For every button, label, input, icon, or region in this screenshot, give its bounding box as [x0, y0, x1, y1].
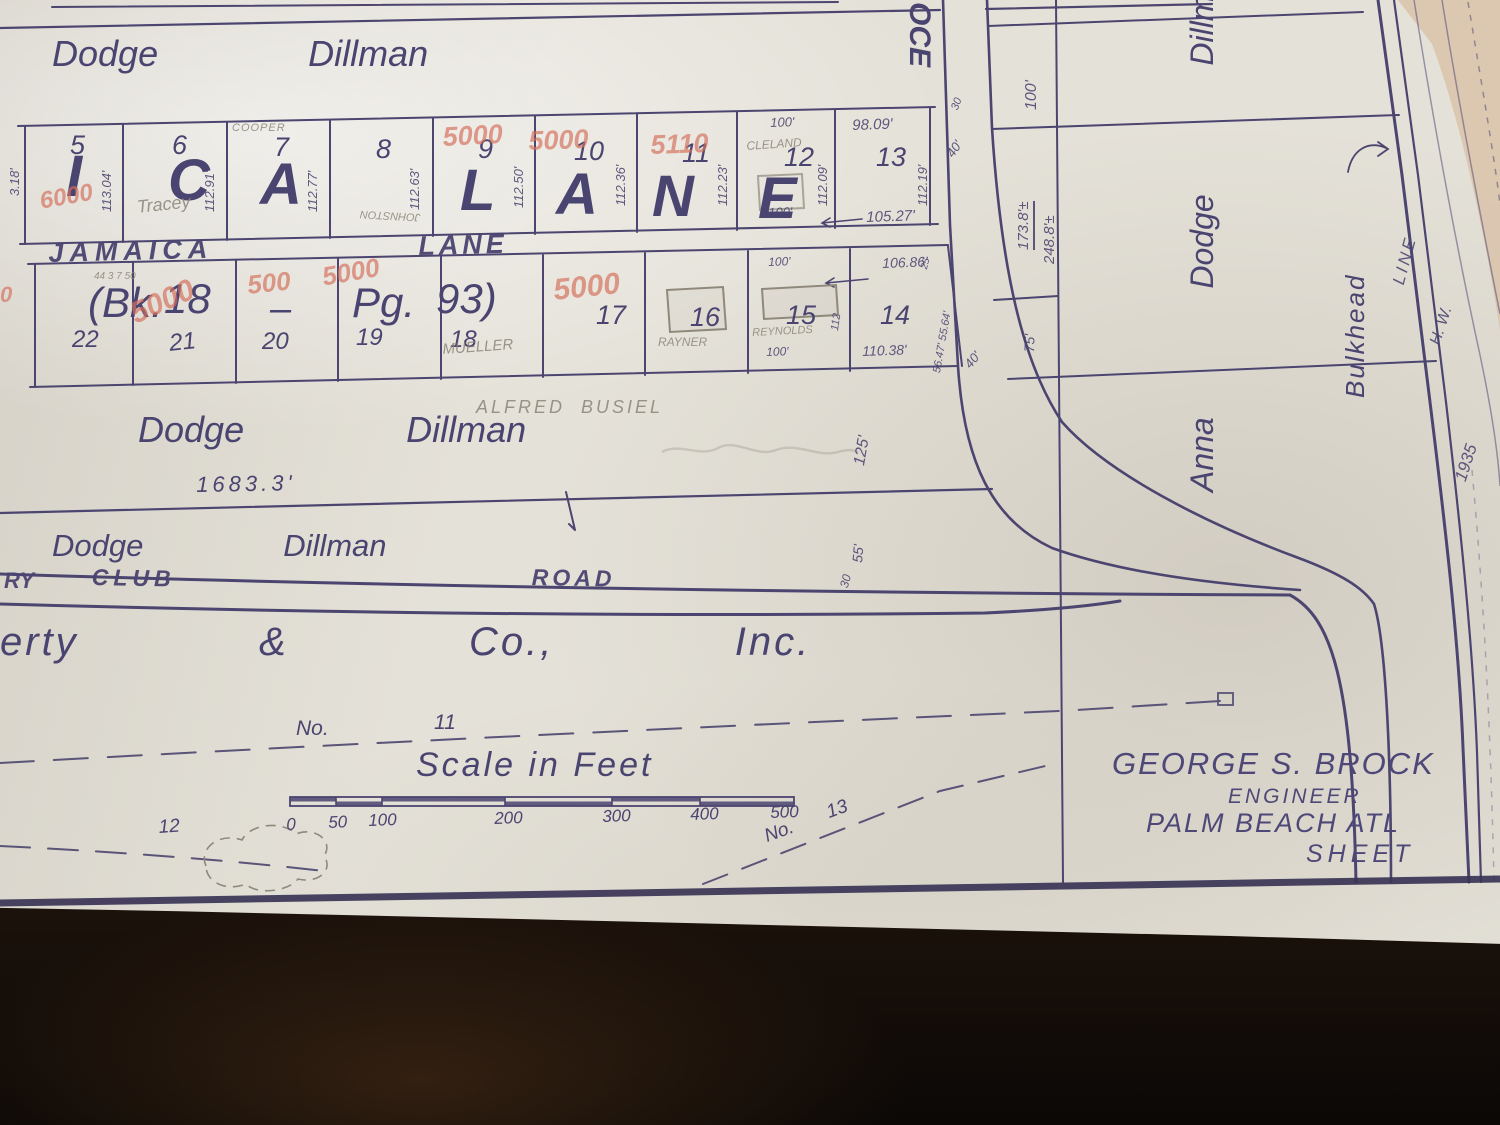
map-location: PALM BEACH ATL	[1146, 810, 1400, 837]
owner-company-partial: erty & Co., Inc.	[0, 622, 811, 662]
lot-measurement: 112.09'	[816, 165, 829, 206]
lane-big-letter: N	[652, 168, 694, 226]
map-paper: Dodge DillmanICALANEJAMAICALANE567891011…	[0, 0, 1500, 1125]
block-measurement: 30	[838, 573, 853, 589]
lot-number: 22	[72, 328, 99, 352]
photo-of-plat-map: { "scene":{ "description":"Photograph of…	[0, 0, 1500, 1125]
scale-tick: 100	[368, 811, 397, 829]
lot-number: 21	[168, 329, 197, 356]
red-price-note: 5000	[552, 269, 622, 306]
scale-tick: 50	[328, 813, 348, 831]
red-price-note: 0	[0, 284, 12, 306]
penciled-owner: COOPER	[232, 123, 286, 134]
scale-tick: 300	[602, 807, 631, 825]
penciled-note: 44 3 7 50	[94, 272, 136, 282]
penciled-owner: CLELAND	[746, 136, 802, 152]
street-country-club: CLUB	[92, 566, 176, 590]
street-road: ROAD	[532, 566, 616, 590]
street-country-club-partial: RY	[4, 570, 34, 592]
red-price-note: 5110	[650, 130, 709, 159]
lane-big-letter: L	[460, 162, 495, 220]
sheet-label: SHEET	[1306, 842, 1414, 867]
lot-measurement: 112.36'	[614, 165, 627, 206]
scale-tick: 0	[286, 816, 296, 833]
survey-line-label: 11	[434, 712, 456, 733]
scale-tick: 200	[494, 809, 523, 827]
red-price-note: 5000	[528, 126, 589, 155]
penciled-owner: RAYNER	[658, 336, 707, 348]
owner-dodge-dillman-middle: Dodge Dillman	[138, 412, 526, 448]
owner-anna-dodge-dillman: Anna Dodge Dillman	[1186, 0, 1218, 492]
lot-measurement: 112.77'	[306, 171, 319, 212]
penciled-owner: JOHNSTON	[360, 208, 421, 222]
lane-big-letter: A	[260, 156, 302, 214]
street-jamaica: JAMAICA	[48, 236, 214, 267]
lot-measurement: 112.50'	[512, 167, 525, 208]
lot-measurement: 112.63'	[408, 169, 421, 210]
block-measurement: 75'	[1022, 334, 1037, 353]
map-border-line	[0, 879, 1500, 903]
lot-measurement: 100'	[766, 345, 789, 358]
lot-measurement: 100'	[768, 255, 791, 268]
scale-bar	[290, 797, 794, 806]
lot-measurement: 110.38'	[862, 342, 907, 358]
block-measurement: 173.8'±	[1016, 201, 1035, 250]
bulkhead-label: Bulkhead	[1342, 274, 1368, 398]
red-price-note: 5000	[442, 121, 503, 151]
block-measurement: 100'	[1024, 80, 1040, 110]
faint-pencil-scribble	[662, 445, 858, 453]
survey-monument-marker	[1218, 693, 1233, 705]
lot-number: 5	[70, 132, 85, 159]
scale-tick: 400	[690, 805, 719, 823]
lot-measurement: 112.23'	[716, 165, 729, 206]
plat-book-ref: 93)	[436, 278, 497, 320]
lot-number: 8	[376, 136, 391, 163]
engineer-name: GEORGE S. BROCK	[1112, 748, 1435, 779]
lot-measurement: 105.27'	[866, 208, 915, 225]
plat-book-ref: Pg.	[352, 282, 415, 324]
survey-line-label: No.	[296, 718, 329, 739]
lot-measurement: 113.04'	[100, 171, 113, 212]
lot-measurement: 112.91'	[203, 171, 216, 212]
lane-big-letter: A	[556, 166, 598, 224]
lot-number: 19	[356, 326, 383, 350]
block-measurement: 55'	[850, 544, 866, 563]
engineer-title: ENGINEER	[1228, 786, 1362, 807]
lot-number: 7	[274, 134, 289, 161]
lot-number: 20	[262, 330, 289, 354]
street-ocean: OCE	[904, 2, 934, 67]
lot-measurement: 100'	[768, 205, 793, 219]
lot-measurement: 98.09'	[852, 117, 893, 133]
scale-title: Scale in Feet	[416, 748, 653, 782]
lot-measurement: 100'	[770, 115, 795, 129]
lot-number: 13	[876, 144, 906, 171]
lot-measurement: 112.19'	[916, 165, 929, 206]
red-price-note: 500	[246, 267, 292, 297]
survey-line-label: 12	[158, 817, 180, 837]
lot-measurement: 3.18'	[8, 168, 21, 196]
shoreline-sand	[1398, 0, 1500, 330]
owner-dodge-dillman-lower: Dodge Dillman	[52, 530, 387, 561]
lot-number: 16	[690, 304, 720, 331]
owner-dodge-dillman-top: Dodge Dillman	[52, 36, 428, 72]
street-lane: LANE	[418, 231, 508, 260]
lot-number: 14	[880, 302, 910, 329]
block-measurement: 248.8'±	[1042, 215, 1057, 264]
lot-number: 6	[172, 132, 187, 159]
lot-number: 17	[596, 302, 626, 329]
frontage-measurement: 1683.3'	[196, 472, 296, 496]
